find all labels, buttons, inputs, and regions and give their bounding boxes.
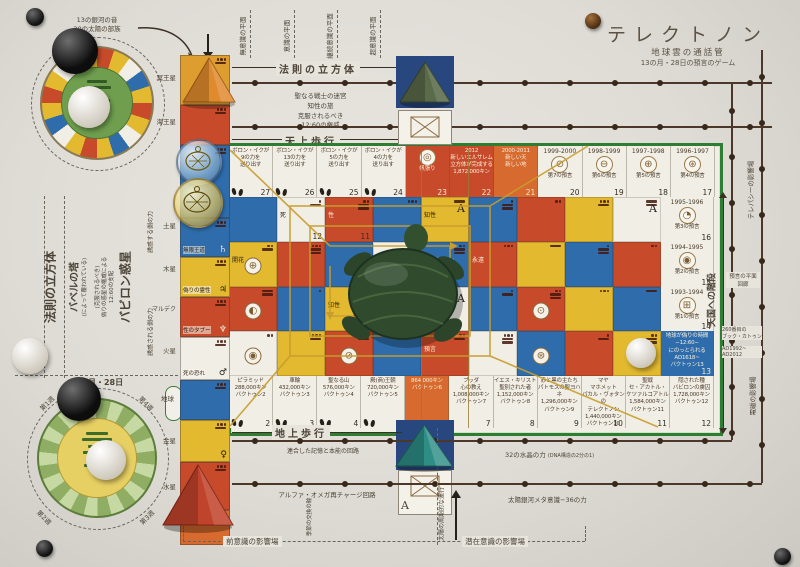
red-pyramid-piece[interactable] xyxy=(160,458,236,534)
mayan-dot xyxy=(217,300,220,303)
planet-glyph-icon: ♄ xyxy=(219,245,227,255)
circuit-node xyxy=(612,438,618,444)
circuit-node xyxy=(342,481,348,487)
bracket-arrow-up xyxy=(719,192,727,198)
circuit-node xyxy=(567,438,573,444)
circuit-node xyxy=(252,80,258,86)
mayan-bar xyxy=(215,387,226,390)
circuit-line xyxy=(232,82,772,84)
planet-label-saturn: 土星 xyxy=(146,220,176,230)
tower-cell-label: 無限王道 xyxy=(183,246,205,254)
circuit-node xyxy=(297,124,303,130)
circuit-node xyxy=(252,124,258,130)
circuit-node xyxy=(342,80,348,86)
mayan-bar xyxy=(215,344,226,347)
circuit-node xyxy=(522,481,528,487)
circuit-node xyxy=(342,124,348,130)
turtle-piece[interactable] xyxy=(328,222,478,354)
game-subtitle-2: 13の月・28日の預言のゲーム xyxy=(588,58,788,68)
turtle-etching-icon xyxy=(179,142,217,180)
katun-line-2: ブック・カトゥン xyxy=(722,333,762,340)
warrior-line-2: 知性の旅 xyxy=(258,102,383,112)
tower-cell[interactable]: ♀ xyxy=(180,420,230,462)
tower-cell[interactable] xyxy=(180,380,230,420)
tempting-force-label: 誘惑する側の力 xyxy=(146,211,155,253)
mayan-dot xyxy=(224,221,227,224)
circuit-node xyxy=(477,80,483,86)
mayan-dot xyxy=(224,423,227,426)
crystal-power-label: 32の水晶の力 (DNA構造の2分の1) xyxy=(505,449,594,459)
push-pin[interactable] xyxy=(774,548,791,565)
mayan-bar xyxy=(215,427,226,430)
game-subtitle: 地球雲の通話管 xyxy=(588,46,788,58)
circuit-node xyxy=(657,481,663,487)
stairway-bracket xyxy=(723,197,724,428)
circuit-node xyxy=(759,120,765,126)
corridor-line-2: 回廊 xyxy=(726,280,760,288)
planet-label-neptune: 海王星 xyxy=(146,116,176,126)
mayan-dot xyxy=(224,340,227,343)
turtle-etching-icon xyxy=(176,181,218,223)
mayan-dot xyxy=(217,423,220,426)
circuit-node xyxy=(342,438,348,444)
mayan-dot xyxy=(217,383,220,386)
circuit-node xyxy=(657,438,663,444)
mayan-numeral-glyph xyxy=(215,300,226,306)
mayan-numeral-glyph xyxy=(215,260,226,266)
mayan-bar xyxy=(215,304,226,307)
season-exchange-label: 季節の交換の輪 xyxy=(305,498,313,537)
push-pin[interactable] xyxy=(36,540,53,557)
circuit-node xyxy=(252,481,258,487)
plane-label-unconscious: 無意識の平面 xyxy=(237,17,247,56)
planet-label-mars: 火星 xyxy=(146,345,176,355)
circuit-node xyxy=(387,481,393,487)
circuit-node xyxy=(759,166,765,172)
planet-glyph-icon: ♂ xyxy=(219,368,227,378)
tower-cell[interactable]: 死の恐れ♂ xyxy=(180,337,230,380)
planet-babylon-label: バビロン惑星 xyxy=(117,251,134,323)
white-stone-piece[interactable] xyxy=(86,440,126,480)
circuit-node xyxy=(702,124,708,130)
up-arrow-head xyxy=(451,490,461,498)
circuit-node xyxy=(522,80,528,86)
up-arrow xyxy=(455,496,457,540)
dashed-guide xyxy=(15,375,178,376)
stairway-heaven-label: 天国への階段 xyxy=(705,273,718,327)
cube-of-law-top-label: 法則の立方体 xyxy=(276,61,360,76)
down-arrow xyxy=(207,34,209,54)
preconscious-field-label: 前意識の影響場 xyxy=(223,536,282,547)
circuit-node xyxy=(387,124,393,130)
mayan-dot xyxy=(217,260,220,263)
circuit-node xyxy=(759,396,765,402)
letter-a-mark: A xyxy=(401,499,409,512)
mayan-numeral-glyph xyxy=(215,383,226,389)
circuit-node xyxy=(567,481,573,487)
warrior-line-1: 聖なる戦士の迷宮 xyxy=(258,92,383,102)
tower-cell-label: 偽りの霊性 xyxy=(183,286,211,294)
circuit-node xyxy=(297,481,303,487)
circuit-node xyxy=(612,80,618,86)
mayan-dots xyxy=(217,383,227,386)
circuit-node xyxy=(657,80,663,86)
years-line-2: AD2012 xyxy=(722,352,762,358)
circuit-node xyxy=(477,481,483,487)
circuit-node xyxy=(759,442,765,448)
mayan-bar xyxy=(215,225,226,228)
planet-label-jupiter: 木星 xyxy=(146,263,176,273)
tower-cell-label: 死の恐れ xyxy=(183,369,205,377)
plane-label-continuing: 継続意識の平面 xyxy=(324,13,334,59)
circuit-node xyxy=(387,438,393,444)
false-power-note-3: 12:60の支配 xyxy=(107,271,115,303)
alpha-omega-label: アルファ・オメガ再チャージ回路 xyxy=(252,489,402,499)
circuit-line xyxy=(232,126,772,128)
years-note: AD1992~ AD2012 xyxy=(722,346,762,358)
circuit-node xyxy=(612,124,618,130)
mayan-dot xyxy=(220,148,223,151)
memory-circuit-label: 連合した記憶と本能の回路 xyxy=(258,446,388,455)
circuit-node xyxy=(702,80,708,86)
bracket-arrow-down xyxy=(719,428,727,434)
circuit-node xyxy=(747,124,753,130)
mayan-bar xyxy=(215,264,226,267)
white-stone-piece[interactable] xyxy=(68,86,110,128)
mayan-dots xyxy=(217,423,227,426)
cube-of-law-label: 法則の立方体 xyxy=(42,251,59,323)
prophecy-corridor-label: 預言の平面 回廊 xyxy=(726,272,760,288)
circuit-node xyxy=(759,74,765,80)
circuit-node xyxy=(702,481,708,487)
circuit-node xyxy=(522,124,528,130)
planet-label-venus: 金星 xyxy=(146,435,176,445)
mayan-dot xyxy=(224,300,227,303)
corridor-line-1: 預言の平面 xyxy=(726,272,760,280)
circuit-node xyxy=(729,430,735,436)
circuit-node xyxy=(759,212,765,218)
mayan-dots xyxy=(217,300,227,303)
push-pin[interactable] xyxy=(26,8,44,26)
mayan-dots xyxy=(217,340,227,343)
circuit-node xyxy=(759,304,765,310)
mayan-dots xyxy=(217,260,227,263)
circuit-node xyxy=(297,438,303,444)
planet-label-maldek: マルデク xyxy=(142,304,176,313)
planet-label-earth: 地球 xyxy=(144,393,174,403)
circuit-node xyxy=(387,80,393,86)
mayan-dot xyxy=(220,340,223,343)
wheel-glyph-row xyxy=(87,80,107,83)
teal-pyramid-piece[interactable] xyxy=(394,420,454,472)
plane-label-super: 超意識の平面 xyxy=(367,17,377,56)
dashed-guide xyxy=(585,526,586,541)
circuit-node xyxy=(747,481,753,487)
mayan-dot xyxy=(220,383,223,386)
envelope-icon xyxy=(399,111,451,144)
circuit-node xyxy=(477,438,483,444)
black-stone-piece[interactable] xyxy=(57,377,101,421)
orange-pyramid-piece[interactable] xyxy=(181,52,237,110)
circuit-node xyxy=(729,384,735,390)
planet-glyph-icon: ♃ xyxy=(219,285,227,295)
planet-label-pluto: 冥王星 xyxy=(146,72,176,82)
circuit-node xyxy=(522,438,528,444)
circuit-node xyxy=(567,80,573,86)
circuit-node xyxy=(477,124,483,130)
mayan-dot xyxy=(217,340,220,343)
green-pyramid-piece[interactable] xyxy=(398,58,452,108)
meta-conscious-label: 太陽銀河メタ意識−36の力 xyxy=(508,494,587,504)
tower-of-babel-label: バベルの塔 xyxy=(66,262,81,312)
circuit-rail xyxy=(761,50,763,483)
circuit-node xyxy=(729,154,735,160)
subconscious-field-label: 潜在意識の影響場 xyxy=(462,536,528,547)
circuit-node xyxy=(729,292,735,298)
white-stone-piece[interactable] xyxy=(12,338,48,374)
katun-line-1: 260番目の xyxy=(722,326,762,333)
mayan-bar xyxy=(215,112,226,115)
tower-cell[interactable]: 性のタブー♆ xyxy=(180,297,230,337)
circuit-node xyxy=(729,200,735,206)
circuit-node xyxy=(657,124,663,130)
mayan-dot xyxy=(220,300,223,303)
tower-of-babel-sub: (によって覆われている) xyxy=(80,258,88,316)
white-stone-piece[interactable] xyxy=(626,338,656,368)
crystal-power-sub: (DNA構造の2分の1) xyxy=(548,453,594,459)
game-title: テレクトノン xyxy=(588,20,788,47)
em-field-label: 電磁の影響場 xyxy=(747,377,757,416)
mayan-dot xyxy=(220,221,223,224)
katun-note: 260番目の ブック・カトゥン xyxy=(722,326,762,340)
dashed-guide xyxy=(250,10,251,58)
circuit-node xyxy=(747,80,753,86)
mayan-dot xyxy=(220,260,223,263)
circuit-node xyxy=(567,124,573,130)
circuit-node xyxy=(702,438,708,444)
telektonon-board-photo: テレクトノン 地球雲の通話管 13の月・28日の預言のゲーム 13の銀河の音 2… xyxy=(0,0,800,567)
mayan-numeral-glyph xyxy=(215,423,226,429)
dashed-guide xyxy=(294,10,295,58)
tower-cell-label: 性のタブー xyxy=(183,326,211,334)
plane-label-conscious: 意識の平面 xyxy=(281,20,291,53)
circuit-rail xyxy=(731,84,733,440)
envelope-cell[interactable] xyxy=(398,110,452,145)
circuit-node xyxy=(612,481,618,487)
circuit-node xyxy=(252,438,258,444)
circuit-node xyxy=(729,246,735,252)
circuit-line xyxy=(232,483,762,485)
mayan-dot xyxy=(224,260,227,263)
mayan-dot xyxy=(220,423,223,426)
mayan-numeral-glyph xyxy=(215,340,226,346)
circuit-node xyxy=(759,258,765,264)
circuit-node xyxy=(297,80,303,86)
circuit-node xyxy=(729,108,735,114)
wheel-glyph-row xyxy=(86,432,108,435)
mayan-dot xyxy=(224,148,227,151)
tower-cell[interactable]: 偽りの霊性♃ xyxy=(180,257,230,297)
mayan-dot xyxy=(224,383,227,386)
warrior-line-3: 克服されるべき xyxy=(258,112,383,122)
black-stone-piece[interactable] xyxy=(52,28,98,74)
glass-turtle-token[interactable] xyxy=(173,178,223,228)
planet-glyph-icon: ♆ xyxy=(219,325,227,335)
circuit-line xyxy=(232,440,732,442)
crystal-power-text: 32の水晶の力 xyxy=(505,451,546,459)
telepathy-field-label: テレパシーの影響場 xyxy=(745,161,755,220)
dashed-guide xyxy=(380,10,381,58)
dashed-guide xyxy=(337,10,338,58)
